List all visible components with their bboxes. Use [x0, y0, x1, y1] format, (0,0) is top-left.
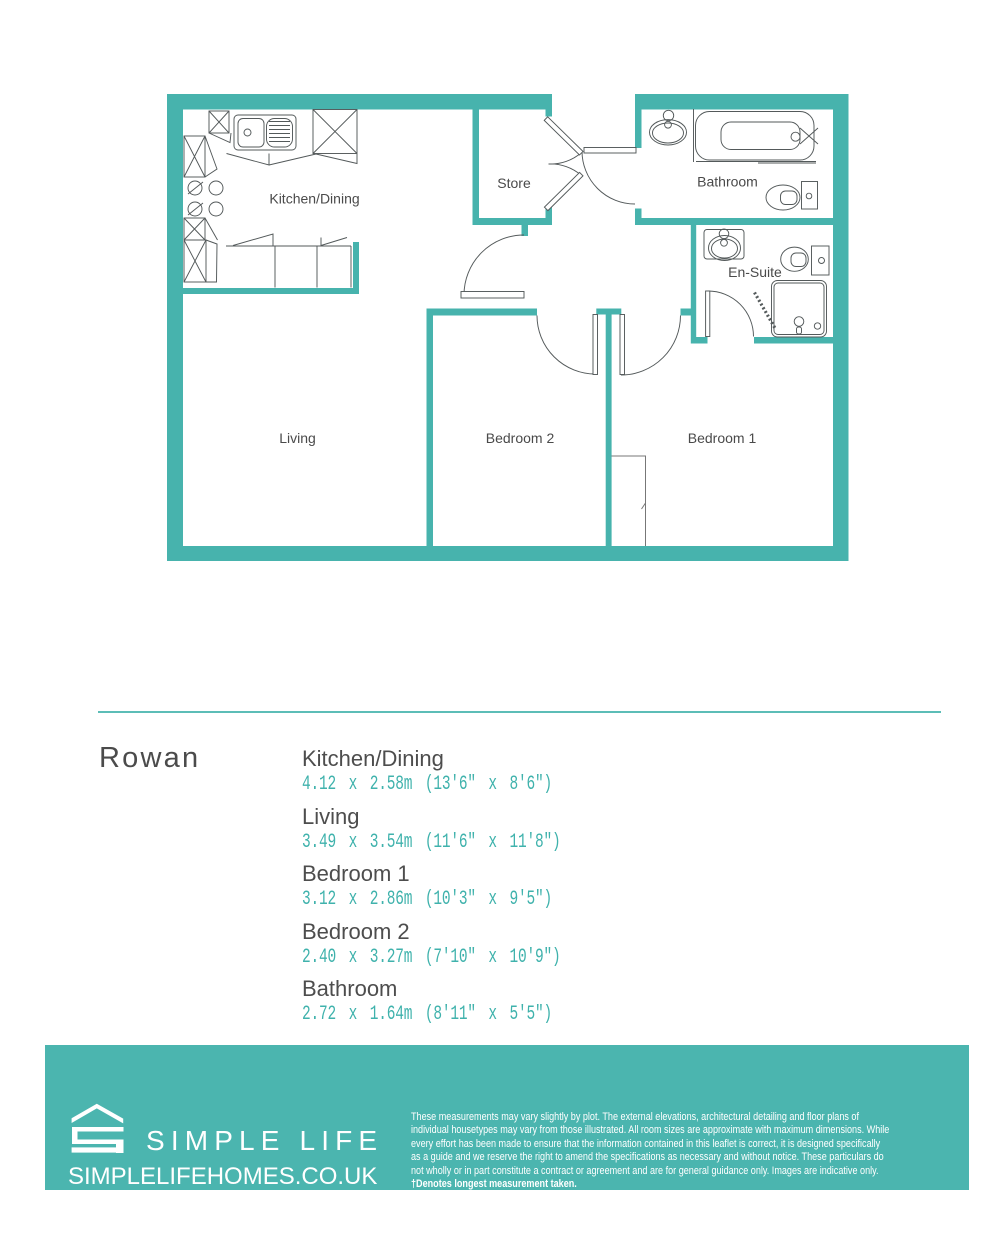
svg-text:Bedroom 1: Bedroom 1 — [688, 430, 757, 446]
svg-text:En-Suite: En-Suite — [728, 264, 782, 280]
svg-text:Bedroom 2: Bedroom 2 — [486, 430, 555, 446]
svg-text:Living: Living — [279, 430, 316, 446]
svg-text:Store: Store — [497, 175, 531, 191]
svg-text:Kitchen/Dining: Kitchen/Dining — [269, 190, 359, 206]
svg-text:Bathroom: Bathroom — [697, 173, 758, 189]
